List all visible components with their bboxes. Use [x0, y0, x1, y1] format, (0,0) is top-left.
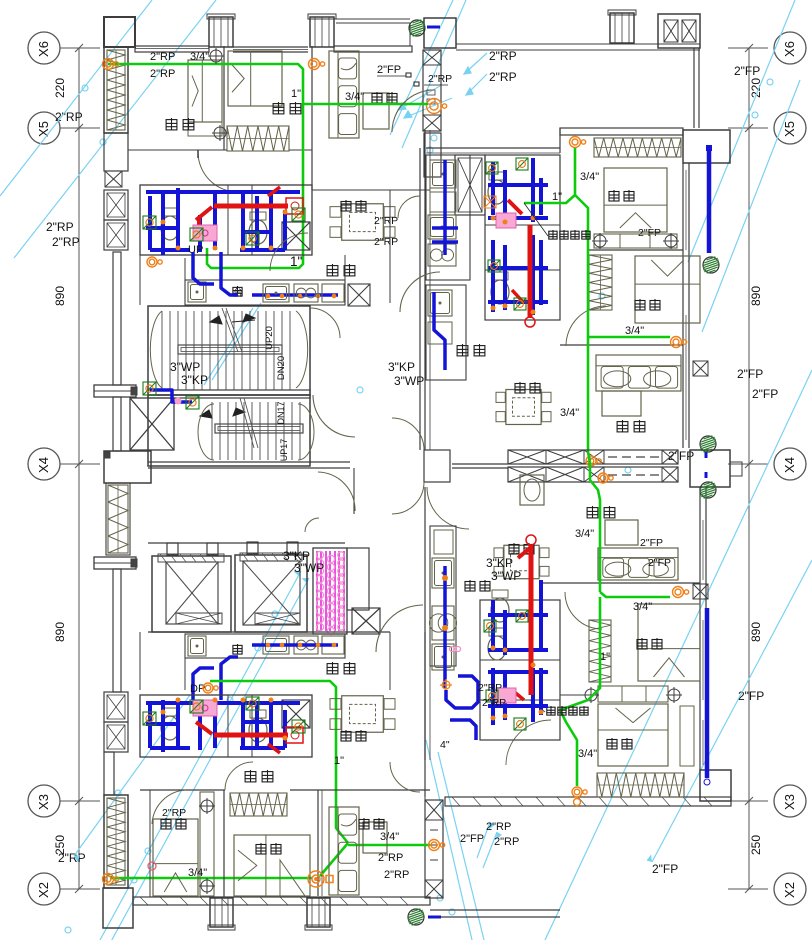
svg-text:2"RP: 2"RP — [150, 51, 175, 63]
svg-text:890: 890 — [749, 286, 763, 306]
svg-text:1": 1" — [600, 651, 610, 663]
svg-text:X3: X3 — [782, 794, 797, 810]
svg-text:2"RP: 2"RP — [378, 852, 403, 864]
svg-text:X5: X5 — [782, 121, 797, 137]
svg-text:1": 1" — [291, 88, 301, 100]
svg-text:2"RP: 2"RP — [374, 215, 398, 227]
svg-text:2"RP: 2"RP — [58, 851, 86, 865]
svg-text:3"KP: 3"KP — [181, 373, 208, 387]
svg-text:890: 890 — [53, 622, 67, 642]
svg-text:UP: UP — [188, 244, 203, 256]
svg-text:3/4": 3/4" — [575, 528, 594, 540]
svg-text:2"RP: 2"RP — [428, 73, 452, 85]
svg-text:3"KP: 3"KP — [486, 556, 513, 570]
svg-text:2"RP: 2"RP — [162, 807, 186, 819]
svg-text:2"RP: 2"RP — [55, 110, 83, 124]
svg-text:1": 1" — [552, 191, 562, 203]
svg-text:3"WP: 3"WP — [294, 561, 324, 575]
svg-text:890: 890 — [749, 622, 763, 642]
svg-text:250: 250 — [749, 835, 763, 855]
svg-text:2"FP: 2"FP — [648, 557, 671, 569]
svg-text:2"RP: 2"RP — [150, 68, 175, 80]
svg-text:4": 4" — [440, 739, 450, 751]
svg-text:3/4": 3/4" — [580, 171, 599, 183]
svg-text:2"RP: 2"RP — [384, 869, 409, 881]
svg-text:2"FP: 2"FP — [752, 387, 778, 401]
svg-text:X4: X4 — [782, 457, 797, 473]
svg-text:2"RP: 2"RP — [494, 836, 519, 848]
svg-text:3/4": 3/4" — [625, 325, 644, 337]
svg-text:X6: X6 — [36, 41, 51, 57]
svg-text:2"RP: 2"RP — [478, 682, 502, 694]
svg-text:3/4": 3/4" — [633, 601, 652, 613]
svg-text:2"RP: 2"RP — [482, 697, 506, 709]
svg-text:2"RP: 2"RP — [374, 236, 398, 248]
svg-text:3/4": 3/4" — [190, 51, 209, 63]
svg-text:3"KP: 3"KP — [388, 360, 415, 374]
svg-text:3/4": 3/4" — [188, 867, 207, 879]
svg-text:2"FP: 2"FP — [640, 537, 663, 549]
svg-text:3"WP: 3"WP — [394, 374, 424, 388]
svg-text:X5: X5 — [36, 121, 51, 137]
svg-text:2"FP: 2"FP — [377, 64, 401, 76]
svg-text:2"FP: 2"FP — [737, 367, 763, 381]
svg-text:2"FP: 2"FP — [652, 862, 678, 876]
svg-text:3/4": 3/4" — [578, 748, 597, 760]
svg-text:2"RP: 2"RP — [489, 70, 517, 84]
svg-text:2"FP: 2"FP — [460, 833, 484, 845]
svg-text:X3: X3 — [36, 794, 51, 810]
svg-text:3/4": 3/4" — [345, 91, 364, 103]
svg-text:2"RP: 2"RP — [52, 235, 80, 249]
svg-text:2"FP: 2"FP — [734, 64, 760, 78]
svg-text:3/4": 3/4" — [560, 407, 579, 419]
svg-text:1": 1" — [290, 254, 303, 269]
svg-text:2"RP: 2"RP — [46, 220, 74, 234]
svg-text:UP17: UP17 — [279, 439, 289, 462]
svg-text:1": 1" — [334, 755, 344, 767]
svg-text:890: 890 — [53, 286, 67, 306]
svg-text:3"WP: 3"WP — [170, 360, 200, 374]
svg-text:DN20: DN20 — [276, 356, 287, 380]
svg-text:2"RP: 2"RP — [489, 49, 517, 63]
svg-text:2"FP: 2"FP — [638, 227, 661, 239]
svg-text:X2: X2 — [36, 882, 51, 898]
svg-text:2"RP: 2"RP — [486, 821, 511, 833]
svg-text:X4: X4 — [36, 457, 51, 473]
svg-text:X6: X6 — [782, 41, 797, 57]
svg-text:UP20: UP20 — [264, 326, 275, 350]
svg-text:X2: X2 — [782, 882, 797, 898]
svg-text:3/4": 3/4" — [380, 831, 399, 843]
svg-text:220: 220 — [53, 78, 67, 98]
svg-text:3"WP: 3"WP — [491, 569, 521, 583]
svg-text:DN17: DN17 — [276, 401, 286, 424]
